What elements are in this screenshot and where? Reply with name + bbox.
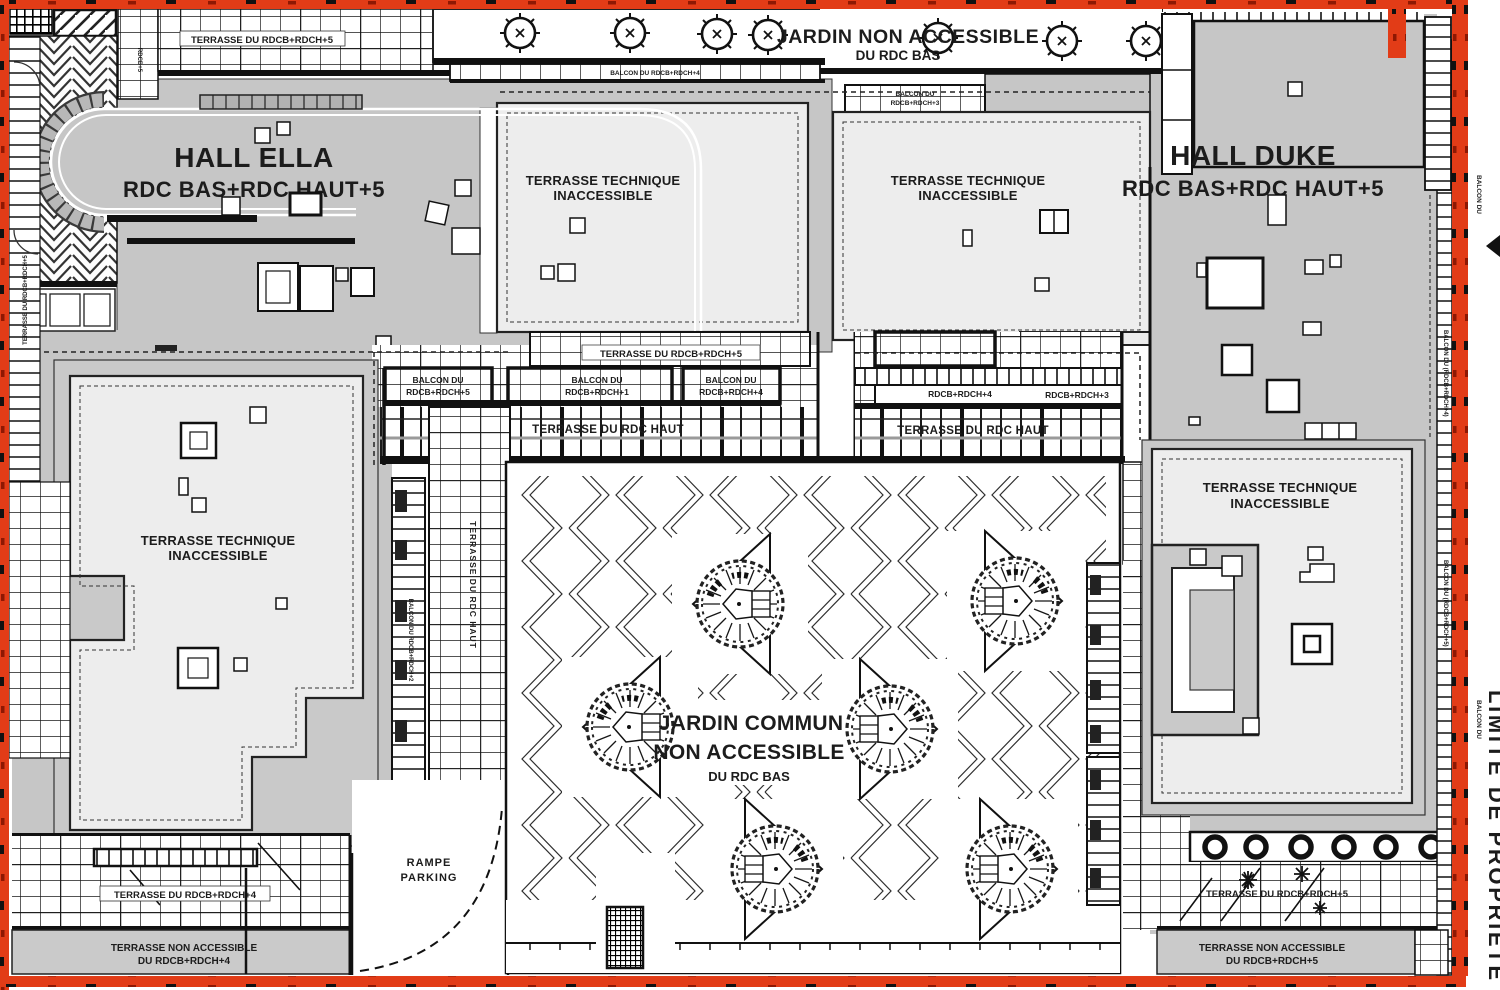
svg-text:INACCESSIBLE: INACCESSIBLE	[918, 188, 1017, 203]
svg-text:NON ACCESSIBLE: NON ACCESSIBLE	[653, 741, 844, 764]
svg-text:DU RDCB+RDCH+5: DU RDCB+RDCH+5	[1226, 956, 1319, 967]
svg-text:BALCON DU (RDCB+RDCH+4): BALCON DU (RDCB+RDCH+4)	[1442, 330, 1448, 417]
svg-text:BALCON DU RDCB+RDCH+2: BALCON DU RDCB+RDCH+2	[407, 599, 413, 682]
svg-text:BALCON DU: BALCON DU	[1475, 175, 1482, 214]
svg-text:TERRASSE TECHNIQUE: TERRASSE TECHNIQUE	[141, 533, 296, 548]
svg-text:RDCB+RDCH+5: RDCB+RDCH+5	[406, 387, 470, 397]
svg-text:HALL DUKE: HALL DUKE	[1170, 140, 1336, 171]
svg-text:TERRASSE TECHNIQUE: TERRASSE TECHNIQUE	[891, 173, 1046, 188]
svg-text:TERRASSE DU RDCB+RDCH+4: TERRASSE DU RDCB+RDCH+4	[114, 890, 257, 901]
svg-text:TERRASSE DU RDC HAUT: TERRASSE DU RDC HAUT	[897, 425, 1049, 437]
svg-text:RDCB+RDCH+4: RDCB+RDCH+4	[699, 387, 763, 397]
svg-text:DU RDCB+RDCH+4: DU RDCB+RDCH+4	[138, 956, 231, 967]
svg-text:TERRASSE DU RDC HAUT: TERRASSE DU RDC HAUT	[468, 521, 478, 649]
svg-text:TERRASSE DU RDCB+RDCH+5: TERRASSE DU RDCB+RDCH+5	[191, 35, 334, 46]
svg-text:RAMPE: RAMPE	[407, 857, 452, 869]
svg-text:RDC BAS+RDC HAUT+5: RDC BAS+RDC HAUT+5	[1122, 176, 1384, 201]
svg-text:RDCB+RDCH+1: RDCB+RDCH+1	[565, 387, 629, 397]
svg-text:JARDIN COMMUN: JARDIN COMMUN	[659, 712, 844, 735]
svg-text:INACCESSIBLE: INACCESSIBLE	[168, 548, 267, 563]
svg-text:DU RDC BAS: DU RDC BAS	[856, 48, 941, 63]
svg-text:JARDIN NON ACCESSIBLE: JARDIN NON ACCESSIBLE	[777, 26, 1039, 48]
svg-text:RDCB+RDCH+3: RDCB+RDCH+3	[891, 100, 940, 107]
svg-text:BALCON DU: BALCON DU	[706, 375, 757, 385]
svg-text:BALCON DU RDCB+RDCH+4: BALCON DU RDCB+RDCH+4	[610, 70, 700, 77]
svg-text:TERRASSE DU RDC HAUT: TERRASSE DU RDC HAUT	[532, 424, 684, 436]
svg-text:TERRASSE DU RDCB+RDCH+5: TERRASSE DU RDCB+RDCH+5	[600, 349, 743, 360]
svg-text:TERRASSE TECHNIQUE: TERRASSE TECHNIQUE	[1203, 480, 1358, 495]
svg-text:TERRASSE TECHNIQUE: TERRASSE TECHNIQUE	[526, 173, 681, 188]
svg-text:TERRASSE NON ACCESSIBLE: TERRASSE NON ACCESSIBLE	[111, 943, 258, 954]
svg-text:RDC BAS+RDC HAUT+5: RDC BAS+RDC HAUT+5	[123, 177, 385, 202]
svg-text:BALCON DU (RDCB+RDCH+5): BALCON DU (RDCB+RDCH+5)	[1442, 560, 1448, 647]
svg-text:BALCON DU: BALCON DU	[1475, 700, 1482, 739]
svg-text:RDCB+RDCH+3: RDCB+RDCH+3	[1045, 390, 1109, 400]
svg-text:TERRASSE DU RDCB+RDCH+5: TERRASSE DU RDCB+RDCH+5	[23, 255, 29, 345]
svg-text:BALCON DU: BALCON DU	[572, 375, 623, 385]
svg-text:RDCB+RDCH+4: RDCB+RDCH+4	[928, 389, 992, 399]
svg-text:RDCB+5: RDCB+5	[136, 48, 142, 73]
svg-text:DU RDC BAS: DU RDC BAS	[708, 769, 790, 784]
svg-text:BALCON DU: BALCON DU	[413, 375, 464, 385]
svg-text:INACCESSIBLE: INACCESSIBLE	[1230, 496, 1329, 511]
svg-text:INACCESSIBLE: INACCESSIBLE	[553, 188, 652, 203]
svg-text:TERRASSE DU RDCB+RDCH+5: TERRASSE DU RDCB+RDCH+5	[1206, 889, 1349, 900]
svg-text:TERRASSE NON ACCESSIBLE: TERRASSE NON ACCESSIBLE	[1199, 943, 1346, 954]
svg-text:HALL ELLA: HALL ELLA	[174, 142, 334, 173]
svg-text:PARKING: PARKING	[401, 872, 458, 884]
